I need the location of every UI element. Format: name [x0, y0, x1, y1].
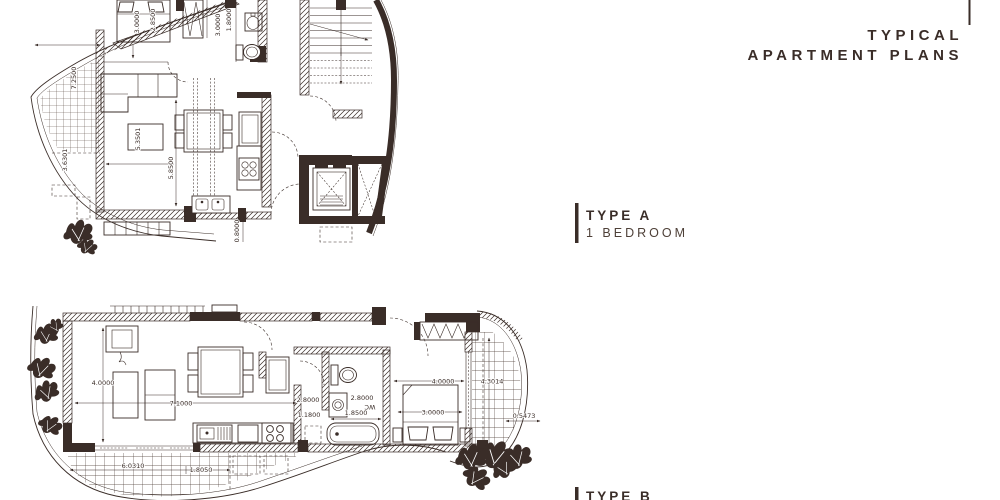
- dining-table: [188, 347, 253, 397]
- nightstand: [393, 428, 402, 442]
- dim-label: 7.1000: [170, 400, 193, 408]
- staircase: [300, 0, 372, 122]
- kitchen-sink-icon: [197, 425, 232, 442]
- dim-label: 1.8000: [225, 9, 233, 32]
- toilet-icon: [236, 45, 261, 61]
- dim-label: 3.0000: [422, 409, 445, 417]
- dim-label: 1.8500: [345, 409, 368, 417]
- floor-plan-type-a: 3.0000 2.8500 3.0000 1.8000 7.2500 3.630…: [28, 0, 398, 258]
- dim-label: 0.5473: [513, 412, 536, 420]
- bathroom-door-swing: [300, 361, 324, 385]
- title-line1: TYPICAL: [867, 27, 963, 44]
- kitchen-counter: [237, 146, 261, 190]
- kitchen-wall: [262, 95, 271, 207]
- south-wall: [200, 444, 298, 452]
- dim-label: 3.0000: [214, 14, 222, 37]
- balcony-bench: [104, 222, 170, 235]
- plant: [63, 220, 92, 244]
- wc-partition: [322, 352, 329, 410]
- plan-title: TYPICAL APARTMENT PLANS: [747, 0, 970, 64]
- kitchen-wall-stub: [259, 352, 266, 378]
- dim-label: 2.8500: [149, 9, 157, 32]
- entry-door-swing: [271, 184, 301, 214]
- dim-label: 1.1800: [298, 411, 321, 419]
- dim-label: 3.0000: [133, 11, 141, 34]
- bathtub-icon: [327, 423, 379, 445]
- dim-label: 4.3014: [481, 378, 504, 386]
- bedroom-window-wall: [465, 332, 472, 446]
- dim-label: 5.3501: [134, 128, 142, 151]
- armchair: [113, 372, 138, 418]
- type-a-title: TYPE A: [586, 208, 652, 223]
- dim-label: 4.0000: [92, 379, 115, 387]
- type-a-rule: [575, 203, 579, 243]
- dim-label: 5.8500: [167, 157, 175, 180]
- beam-lines: [194, 78, 215, 203]
- title-line2: APARTMENT PLANS: [747, 47, 963, 64]
- title-rule: [969, 0, 971, 25]
- counter-module: [238, 425, 258, 442]
- type-a-subtitle: 1 BEDROOM: [586, 226, 688, 240]
- door-swing: [168, 62, 188, 82]
- living-south-wall: [96, 210, 190, 219]
- wall-stub: [225, 0, 236, 8]
- south-wall: [246, 212, 271, 219]
- door-swing: [244, 322, 272, 350]
- toilet-icon: [331, 365, 357, 385]
- south-wall: [192, 213, 240, 219]
- dim-label: 2.8000: [297, 396, 320, 404]
- planter-dashed: [52, 185, 75, 196]
- left-wall: [96, 30, 104, 212]
- sofa: [101, 74, 177, 112]
- wall-block: [193, 443, 200, 452]
- wall-stub: [414, 322, 420, 340]
- dim-label: 3.6301: [61, 149, 69, 172]
- type-b-rule: [575, 487, 579, 500]
- apartment-plans-sheet: 3.0000 2.8500 3.0000 1.8000 7.2500 3.630…: [0, 0, 1000, 500]
- dim-label: 4.0000: [432, 378, 455, 386]
- stove-icon: [262, 423, 291, 443]
- dim-label: 2.8000: [351, 394, 374, 402]
- entry-door-swing: [390, 318, 428, 356]
- type-a-label: TYPE A 1 BEDROOM: [575, 203, 688, 243]
- kitchen-sink-icon: [192, 196, 230, 213]
- type-b-title: TYPE B: [586, 489, 653, 500]
- dining-table: [175, 110, 232, 152]
- bathroom-east-wall: [383, 350, 390, 445]
- wall-block: [63, 443, 95, 452]
- fridge-icon: [239, 112, 261, 146]
- dim-label: 6.0310: [122, 462, 145, 470]
- dim-label: 0.8000: [233, 220, 241, 243]
- west-wall: [63, 321, 72, 423]
- fridge-icon: [266, 357, 289, 393]
- tv-unit: [106, 326, 138, 365]
- stove-icon: [239, 158, 259, 180]
- dim-label: 7.2500: [70, 67, 78, 90]
- dim-label: 1.8050: [190, 466, 213, 474]
- glass-slider: [95, 446, 193, 450]
- type-b-label: TYPE B: [575, 487, 653, 500]
- floor-plan-type-b: 4.0000 7.1000 2.8000 1.1800 2.8000 WC 1.…: [25, 305, 540, 500]
- wall-block: [63, 423, 72, 446]
- bathroom-north-wall: [294, 347, 390, 354]
